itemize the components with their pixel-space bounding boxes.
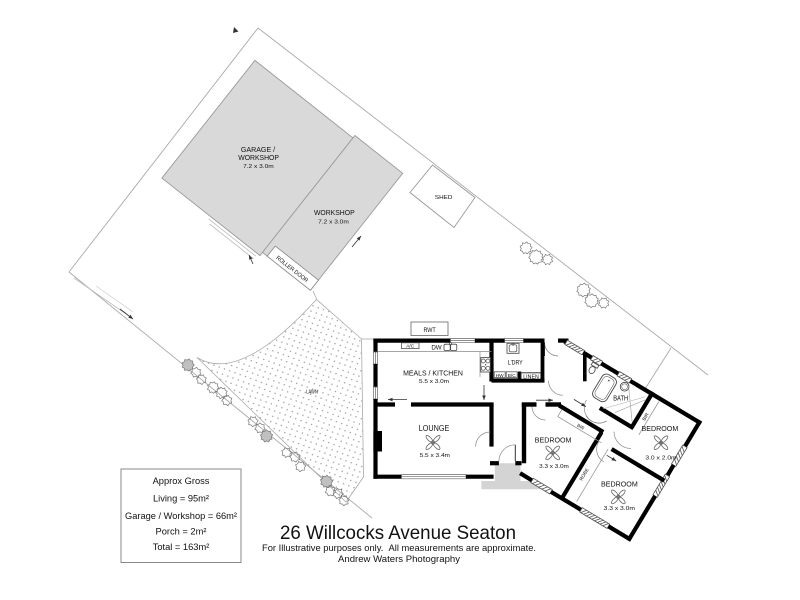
svg-text:RWT: RWT (423, 327, 435, 334)
svg-text:For Illustrative purposes only: For Illustrative purposes only. All meas… (262, 542, 536, 553)
svg-text:WORKSHOP: WORKSHOP (238, 154, 279, 162)
svg-text:Living = 95m²: Living = 95m² (153, 494, 209, 504)
svg-text:LOUNGE: LOUNGE (419, 424, 450, 433)
svg-text:3.0 x 2.0m: 3.0 x 2.0m (645, 456, 676, 462)
svg-text:WORKSHOP: WORKSHOP (314, 209, 355, 217)
svg-text:B/C: B/C (508, 373, 517, 379)
svg-text:BIR: BIR (576, 423, 586, 432)
svg-text:3.3 x 3.0m: 3.3 x 3.0m (604, 506, 635, 512)
svg-text:Approx Gross: Approx Gross (153, 476, 210, 486)
svg-text:3.3 x 3.0m: 3.3 x 3.0m (539, 464, 569, 470)
svg-text:BEDROOM: BEDROOM (601, 479, 638, 488)
svg-text:5.5 x 3.4m: 5.5 x 3.4m (420, 453, 451, 459)
svg-text:L'DRY: L'DRY (508, 360, 524, 367)
svg-text:Porch = 2m²: Porch = 2m² (156, 527, 207, 537)
svg-text:LAWN: LAWN (306, 390, 318, 396)
svg-text:DW: DW (431, 344, 441, 351)
svg-text:BEDROOM: BEDROOM (535, 435, 572, 444)
svg-text:LINEN: LINEN (523, 375, 539, 381)
svg-text:Garage / Workshop = 66m²: Garage / Workshop = 66m² (125, 511, 237, 521)
svg-text:A/C: A/C (406, 344, 415, 350)
svg-text:Andrew Waters Photography: Andrew Waters Photography (338, 554, 460, 565)
svg-text:BIR: BIR (641, 412, 651, 422)
svg-text:GARAGE /: GARAGE / (241, 146, 275, 154)
svg-text:Total = 163m²: Total = 163m² (153, 542, 210, 552)
svg-text:BEDROOM: BEDROOM (642, 424, 679, 433)
svg-text:MEALS / KITCHEN: MEALS / KITCHEN (403, 368, 463, 377)
svg-text:7.2 x 3.0m: 7.2 x 3.0m (318, 220, 349, 226)
svg-text:BATH: BATH (613, 395, 628, 403)
svg-text:5.5 x 3.0m: 5.5 x 3.0m (419, 379, 449, 385)
svg-text:7.2 x 3.0m: 7.2 x 3.0m (243, 164, 274, 170)
svg-text:HW: HW (496, 373, 504, 379)
svg-text:SHED: SHED (435, 195, 453, 201)
